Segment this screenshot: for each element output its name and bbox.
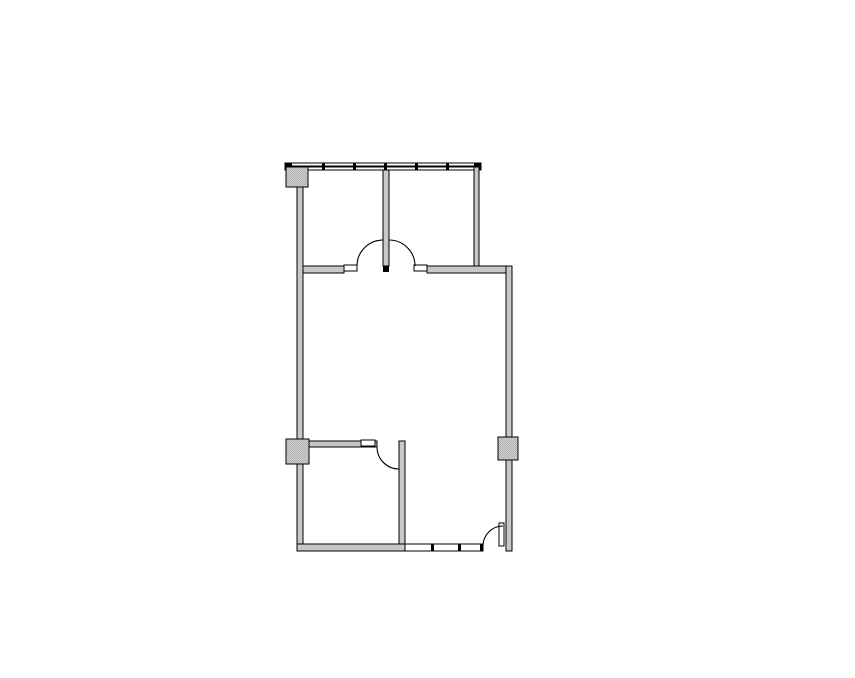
floorplan-geometry [285, 163, 518, 551]
column-top-left [286, 167, 308, 187]
corridor-wall-right-segment [427, 266, 512, 273]
low-wall-bottom-right-segment [405, 544, 483, 551]
door-leaf-upper-right-room [414, 265, 427, 271]
wall-upper-rooms-right [474, 167, 479, 266]
exterior-wall-left [297, 170, 303, 551]
window-wall-top-strip-upper [285, 163, 481, 166]
partition-wall-divider-end-cap [383, 266, 389, 272]
exterior-wall-right [506, 266, 512, 551]
door-leaf-lower-room [361, 440, 375, 446]
corridor-wall-left-segment [303, 266, 344, 273]
door-leaf-upper-left-room [344, 265, 357, 271]
column-mid-left [286, 439, 309, 464]
window-mullion-mark-4 [415, 163, 418, 170]
door-swing-lower-room [377, 447, 399, 469]
window-mullion-mark-2 [353, 163, 356, 170]
floorplan-page [0, 0, 855, 678]
door-swing-upper-left-room [357, 240, 383, 266]
door-swing-upper-right-room [389, 240, 415, 266]
low-wall-joint-mark-1 [431, 544, 434, 551]
window-mullion-mark-5 [446, 163, 449, 170]
column-mid-right [498, 437, 518, 460]
partition-wall-upper-rooms-divider [383, 170, 389, 266]
floorplan-canvas [0, 0, 855, 678]
window-mullion-mark-3 [384, 163, 387, 170]
low-wall-joint-mark-2 [458, 544, 461, 551]
exterior-wall-bottom-left-segment [297, 544, 405, 551]
interior-wall-lower-room-right [399, 441, 405, 551]
window-mullion-mark-1 [322, 163, 325, 170]
